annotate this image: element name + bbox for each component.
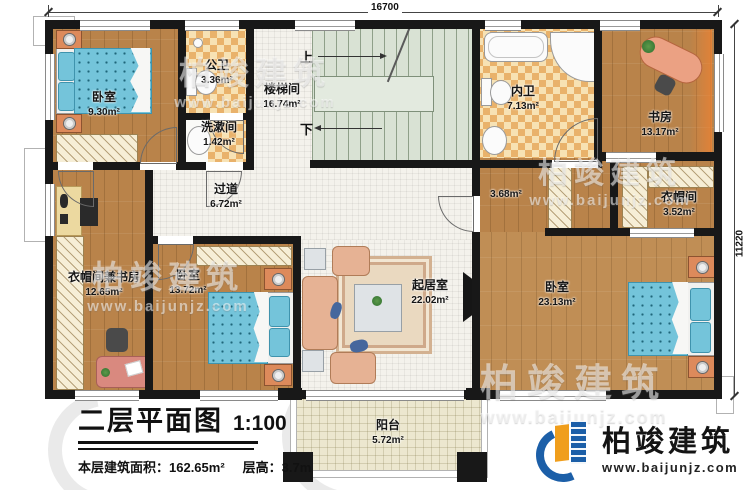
room-area: 23.13m² [522,296,592,309]
door-gap [206,162,243,170]
pillow [690,322,711,353]
wall-segment [472,236,480,392]
wall-segment [293,236,301,392]
room-label-stairwell: 楼梯间 16.74m² [250,82,314,111]
logo-building-blue [569,421,586,464]
balcony-column [457,452,487,482]
wall-segment [610,154,618,236]
sink [482,126,507,155]
room-name: 阳台 [356,418,420,434]
room-label-living: 起居室 22.02m² [396,278,464,307]
room-area: 7.13m² [492,100,554,113]
room-label-cloak-study: 衣帽间兼书房 12.65m² [56,270,152,299]
logo-building-orange [555,424,569,462]
room-area: 3.36m² [188,74,246,87]
wardrobe-cloak-study [56,236,84,390]
dimension-top-value: 16700 [368,2,402,13]
room-area: 5.72m² [356,434,420,447]
cased-opening [630,228,694,238]
stair-down-line [318,128,382,129]
room-label-corridor: 过道 6.72m² [196,182,256,211]
title-underline [78,441,258,444]
stair-up-arrow [380,53,387,59]
pillow [690,288,711,321]
room-area: 9.30m² [58,106,150,119]
lamp-icon [272,369,285,382]
pillow [58,52,75,81]
room-name: 卧室 [156,268,220,284]
lamp-icon [63,117,76,130]
window [295,20,355,31]
floor-area-info: 本层建筑面积：162.65m² [78,457,225,476]
dimension-line-right [734,24,735,396]
room-label-master: 卧室 23.13m² [522,280,592,309]
dimension-right-value: 11220 [735,216,746,272]
bathtub [484,32,548,62]
room-label-bedroom1: 卧室 9.30m² [58,90,150,119]
wardrobe-cloakroom-top [648,166,714,188]
brand-url: www.baijunjz.com [602,460,738,475]
room-label-public-bath: 公卫 3.36m² [188,58,246,87]
room-name: 衣帽间 [646,190,712,206]
armchair [332,246,370,276]
table-decor [372,296,382,306]
wall-segment [178,20,186,170]
room-label-ensuite-bath: 内卫 7.13m² [492,84,554,113]
stair-down-label: 下 [300,119,313,138]
stair-up-label: 上 [300,47,313,66]
window [600,20,640,31]
bathtub-inner [488,36,544,58]
room-area: 3.52m² [646,206,712,219]
balcony-sliding-door [306,390,464,401]
room-label-bedroom2: 卧室 13.72m² [156,268,220,297]
window [500,390,606,401]
sofa-chaise [330,352,376,384]
balcony-stub [466,388,490,400]
room-area: 12.65m² [56,286,152,299]
nightstand [688,256,716,278]
lamp-icon [272,273,285,286]
window [45,54,55,120]
decor-box [60,214,68,224]
room-label-balcony: 阳台 5.72m² [356,418,420,447]
floor-plan: 上 下 [0,0,750,490]
brand-logo: 柏竣建筑 www.baijunjz.com [536,418,738,475]
brand-name: 柏竣建筑 [602,418,738,460]
brand-logo-icon [536,418,594,474]
nightstand [264,364,292,386]
lamp-icon [696,261,709,274]
coffee-table [354,284,402,332]
room-name: 过道 [196,182,256,198]
room-name: 起居室 [396,278,464,294]
room-area: 3.68m² [478,188,534,201]
room-label-cloakroom: 衣帽间 3.52m² [646,190,712,219]
nightstand [264,268,292,290]
side-table [304,248,326,270]
room-name: 书房 [628,110,692,126]
side-table [302,350,324,372]
room-label-suite-hall: 3.68m² [478,188,534,201]
pillow [269,328,290,357]
stair-landing [314,76,434,112]
plant-icon [101,368,110,377]
room-area: 6.72m² [196,198,256,211]
decor-bottle [60,194,68,208]
floor-height-info: 层高：3.7m [243,457,312,476]
room-area: 1.42m² [190,136,248,149]
plan-title: 二层平面图 [78,406,223,436]
study-glow [690,30,712,152]
nightstand [56,30,82,49]
door-gap [158,236,193,244]
room-label-study: 书房 13.17m² [628,110,692,139]
stair-down-arrow [314,125,321,131]
desk-chair [106,328,128,352]
wardrobe-bedroom2 [196,246,292,266]
room-area: 13.17m² [628,126,692,139]
lamp-icon [63,33,76,46]
nightstand [688,356,716,378]
plant-icon [642,40,655,53]
window [714,54,724,132]
room-label-washroom: 洗漱间 1.42m² [190,120,248,149]
light-fixture-icon [193,38,203,48]
room-name: 衣帽间兼书房 [56,270,152,286]
door-gap [58,162,93,170]
room-area: 22.02m² [396,294,464,307]
stair-up-line [318,56,382,57]
room-name: 楼梯间 [250,82,314,98]
plan-scale: 1:100 [233,412,287,435]
lamp-icon [696,361,709,374]
window [80,20,150,31]
wardrobe-cloakroom-left [622,166,648,228]
window [485,20,521,31]
room-name: 洗漱间 [190,120,248,136]
title-underline [78,448,254,450]
pillow [269,296,290,327]
room-name: 公卫 [188,58,246,74]
title-block: 二层平面图1:100 本层建筑面积：162.65m² 层高：3.7m [78,399,311,476]
room-name: 内卫 [492,84,554,100]
cased-opening [606,152,656,163]
room-name: 卧室 [58,90,150,106]
wardrobe-bedroom1 [56,134,138,163]
wall-segment [310,160,480,168]
door-gap [210,113,243,120]
wardrobe-suite-hall [548,164,572,230]
room-area: 16.74m² [250,98,314,111]
room-name: 卧室 [522,280,592,296]
window [185,20,239,31]
room-area: 13.72m² [156,284,220,297]
window [45,184,55,236]
